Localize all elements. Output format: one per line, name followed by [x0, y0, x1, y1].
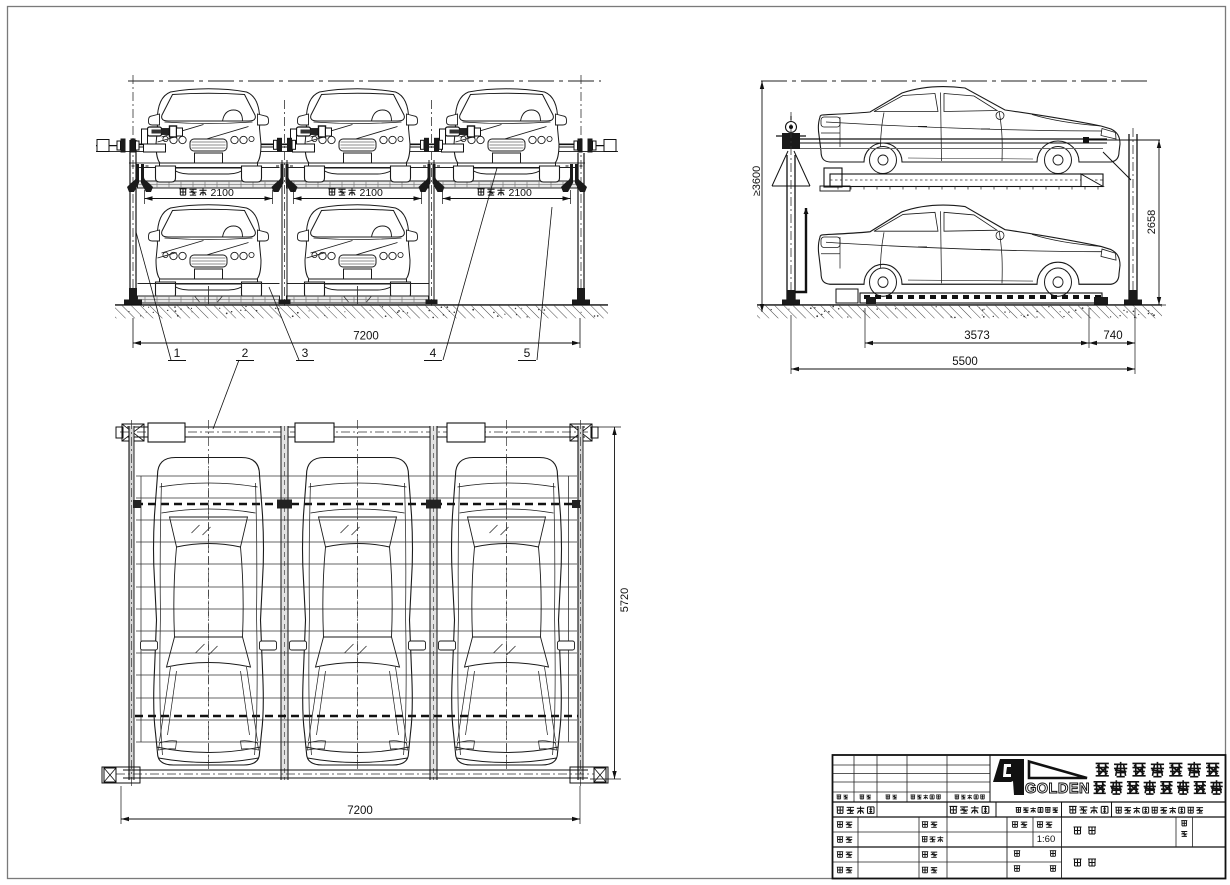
svg-text:7200: 7200	[353, 331, 379, 343]
svg-text:1:60: 1:60	[1037, 834, 1056, 845]
svg-text:5: 5	[524, 346, 531, 360]
svg-text:2658: 2658	[1146, 210, 1158, 234]
svg-text:≥3600: ≥3600	[751, 166, 763, 197]
svg-text:5720: 5720	[619, 588, 631, 612]
svg-text:4: 4	[430, 346, 437, 360]
svg-text:3: 3	[302, 346, 309, 360]
svg-text:2100: 2100	[360, 187, 384, 199]
svg-text:2100: 2100	[211, 187, 235, 199]
svg-text:1: 1	[174, 346, 181, 360]
svg-text:7200: 7200	[347, 805, 373, 817]
svg-text:GOLDEN: GOLDEN	[1025, 781, 1090, 797]
svg-text:2100: 2100	[509, 187, 533, 199]
svg-text:740: 740	[1103, 330, 1122, 342]
svg-text:3573: 3573	[964, 330, 990, 342]
svg-text:2: 2	[242, 346, 249, 360]
svg-text:5500: 5500	[952, 356, 978, 368]
